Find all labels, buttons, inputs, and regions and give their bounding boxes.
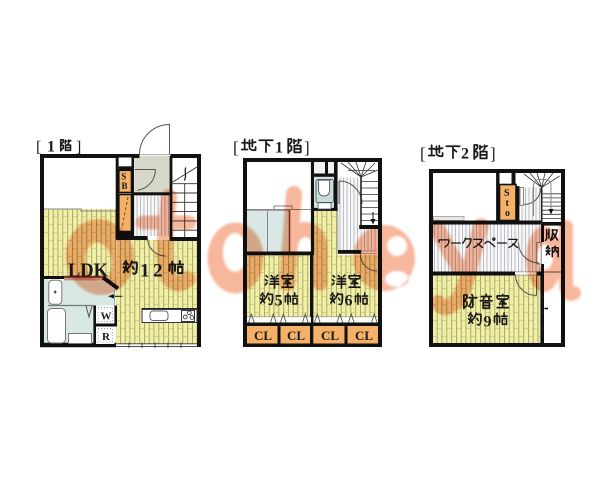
svg-text:CL: CL: [254, 328, 272, 343]
svg-text:]: ]: [304, 138, 310, 157]
svg-text:W: W: [101, 311, 112, 323]
svg-text:R: R: [102, 331, 111, 343]
svg-text:[: [: [233, 138, 239, 157]
svg-text:5: 5: [275, 293, 283, 310]
svg-text:2: 2: [461, 146, 469, 163]
svg-text:[: [: [420, 144, 426, 163]
svg-text:o: o: [505, 208, 510, 219]
svg-text:CL: CL: [321, 328, 339, 343]
svg-text:9: 9: [484, 314, 492, 331]
svg-text:6: 6: [345, 293, 353, 310]
svg-text:[: [: [36, 139, 41, 156]
svg-text:1: 1: [275, 140, 283, 157]
svg-text:CL: CL: [355, 328, 373, 343]
svg-text:1: 1: [140, 261, 150, 282]
svg-text:]: ]: [76, 139, 81, 156]
svg-text:S: S: [121, 172, 126, 182]
svg-text:]: ]: [490, 144, 496, 163]
svg-text:1: 1: [47, 139, 55, 156]
svg-text:B: B: [122, 181, 128, 191]
svg-text:CL: CL: [287, 328, 305, 343]
